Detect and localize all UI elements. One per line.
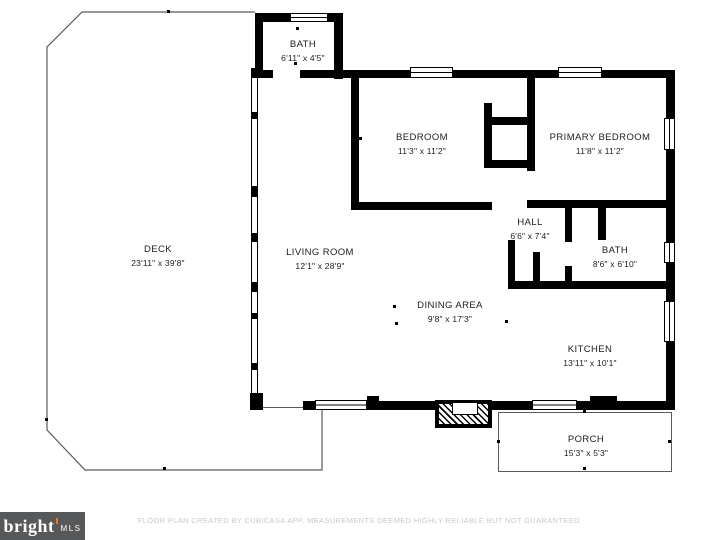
dimension-tick — [359, 137, 362, 140]
wall — [617, 401, 675, 410]
wall — [598, 208, 606, 240]
wall — [251, 363, 258, 370]
wall — [602, 70, 675, 78]
room-dims: 15'3" x 5'3" — [564, 448, 608, 458]
window — [251, 78, 258, 112]
wall — [255, 13, 290, 22]
room-dims: 6'6" x 7'4" — [510, 231, 549, 241]
dimension-tick — [163, 467, 166, 470]
logo-mls-text: MLS — [61, 524, 82, 533]
dimension-tick — [583, 467, 586, 470]
wall — [484, 160, 535, 168]
dimension-tick — [167, 10, 170, 13]
room-name: DINING AREA — [417, 300, 483, 311]
wall — [508, 281, 667, 289]
dimension-tick — [583, 410, 586, 413]
wall — [484, 117, 535, 125]
wall — [590, 396, 617, 410]
window — [251, 319, 258, 363]
wall — [251, 186, 258, 197]
room-dims: 11'8" x 11'2" — [550, 146, 651, 156]
room-name: BEDROOM — [396, 132, 448, 143]
wall — [351, 78, 359, 210]
dimension-tick — [668, 440, 671, 443]
wall — [666, 70, 675, 118]
room-name: PRIMARY BEDROOM — [550, 132, 651, 143]
room-label-hall: HALL 6'6" x 7'4" — [510, 217, 549, 241]
dimension-tick — [393, 305, 396, 308]
room-dims: 8'6" x 6'10" — [593, 259, 637, 269]
floor-plan: BATH 6'11" x 4'5" BEDROOM 11'3" x 11'2" … — [0, 0, 720, 540]
wall — [367, 396, 379, 410]
window — [532, 400, 577, 410]
room-dims: 9'8" x 17'3" — [417, 314, 483, 324]
room-label-bath: BATH 8'6" x 6'10" — [593, 245, 637, 269]
dimension-tick — [497, 440, 500, 443]
window — [251, 292, 258, 313]
wall — [453, 70, 558, 78]
room-name: KITCHEN — [563, 344, 617, 355]
room-name: BATH — [593, 245, 637, 256]
room-label-porch: PORCH 15'3" x 5'3" — [564, 434, 608, 458]
logo-text: bright — [4, 517, 55, 535]
door-opening-line — [263, 407, 303, 408]
window — [251, 197, 258, 233]
room-dims: 13'11" x 10'1" — [563, 358, 617, 368]
deck-outline-path — [47, 12, 322, 470]
room-name: BATH — [281, 39, 325, 50]
wall — [251, 112, 258, 119]
dimension-tick — [395, 322, 398, 325]
wall — [565, 208, 572, 242]
room-dims: 23'11" x 39'8" — [131, 258, 185, 268]
room-dims: 12'1" x 28'9" — [286, 261, 354, 271]
wall — [250, 393, 263, 410]
room-name: DECK — [131, 244, 185, 255]
window — [664, 301, 675, 342]
room-name: PORCH — [564, 434, 608, 445]
wall — [251, 233, 258, 242]
dimension-tick — [420, 205, 423, 208]
room-label-bath-top: BATH 6'11" x 4'5" — [281, 39, 325, 63]
wall — [666, 150, 675, 242]
wall — [251, 282, 258, 292]
window — [251, 370, 258, 393]
room-label-living-room: LIVING ROOM 12'1" x 28'9" — [286, 247, 354, 271]
fireplace-notch — [452, 402, 478, 415]
disclaimer-text: FLOOR PLAN CREATED BY CUBICASA APP. MEAS… — [138, 516, 582, 525]
logo-accent-mark — [56, 518, 58, 524]
room-dims: 6'11" x 4'5" — [281, 53, 325, 63]
room-label-dining-area: DINING AREA 9'8" x 17'3" — [417, 300, 483, 324]
room-dims: 11'3" x 11'2" — [396, 146, 448, 156]
wall — [666, 263, 675, 301]
wall — [666, 342, 675, 408]
room-label-bedroom: BEDROOM 11'3" x 11'2" — [396, 132, 448, 156]
window — [290, 13, 328, 22]
wall — [300, 70, 410, 78]
bright-mls-logo: bright MLS — [0, 512, 85, 540]
window — [251, 119, 258, 186]
window — [251, 242, 258, 282]
wall — [492, 401, 533, 410]
window — [558, 67, 602, 78]
room-label-primary-bedroom: PRIMARY BEDROOM 11'8" x 11'2" — [550, 132, 651, 156]
dimension-tick — [45, 418, 48, 421]
wall — [484, 103, 492, 168]
wall — [577, 401, 591, 410]
fireplace — [435, 400, 492, 428]
wall — [527, 200, 667, 208]
window — [664, 242, 675, 263]
wall — [251, 68, 263, 78]
room-label-kitchen: KITCHEN 13'11" x 10'1" — [563, 344, 617, 368]
window — [410, 67, 453, 78]
dimension-tick — [296, 27, 299, 30]
window — [315, 400, 367, 410]
room-label-deck: DECK 23'11" x 39'8" — [131, 244, 185, 268]
wall — [379, 401, 436, 410]
window — [664, 118, 675, 150]
dimension-tick — [531, 137, 534, 140]
dimension-tick — [505, 320, 508, 323]
room-name: HALL — [510, 217, 549, 228]
room-name: LIVING ROOM — [286, 247, 354, 258]
